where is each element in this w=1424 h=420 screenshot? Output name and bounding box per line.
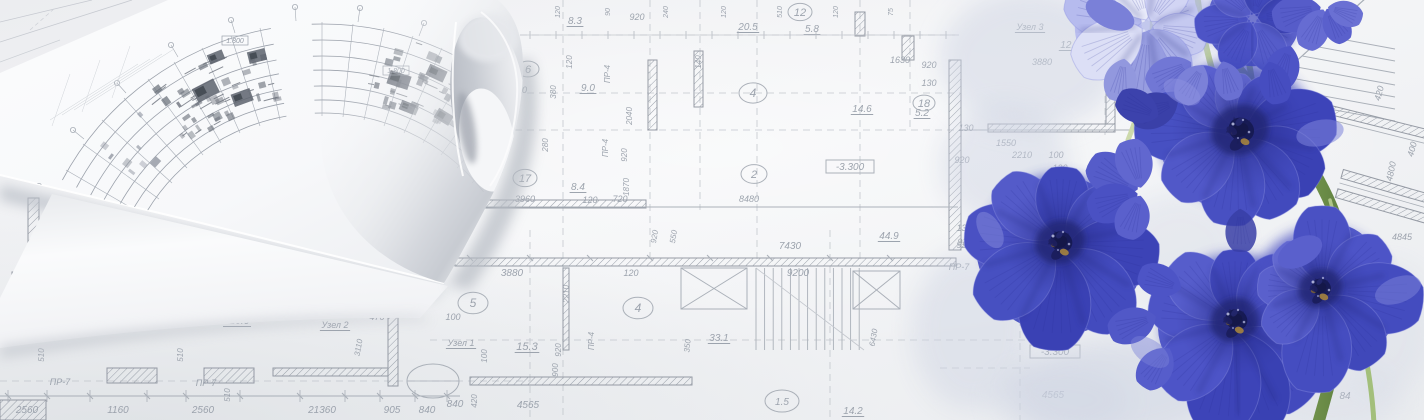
svg-text:5.8: 5.8 — [805, 24, 819, 35]
svg-text:4: 4 — [750, 86, 757, 100]
svg-text:18: 18 — [918, 98, 931, 110]
svg-text:120: 120 — [582, 195, 597, 205]
svg-text:4: 4 — [635, 301, 642, 315]
svg-text:2560: 2560 — [191, 405, 215, 416]
svg-text:920: 920 — [629, 12, 644, 22]
svg-text:2560: 2560 — [15, 405, 39, 416]
svg-text:9.0: 9.0 — [581, 83, 595, 94]
svg-text:120: 120 — [555, 6, 562, 18]
svg-text:9200: 9200 — [787, 268, 810, 279]
svg-text:420: 420 — [470, 394, 479, 408]
svg-text:840: 840 — [419, 405, 436, 416]
svg-text:905: 905 — [384, 405, 401, 416]
svg-text:44.9: 44.9 — [879, 231, 899, 242]
svg-text:280: 280 — [541, 138, 550, 153]
svg-text:510: 510 — [223, 388, 232, 402]
svg-text:14.2: 14.2 — [843, 406, 863, 417]
svg-text:1.5: 1.5 — [775, 397, 789, 408]
svg-text:140: 140 — [694, 55, 703, 69]
svg-text:350: 350 — [682, 338, 692, 353]
svg-text:1160: 1160 — [107, 405, 129, 416]
svg-text:120: 120 — [833, 6, 840, 18]
svg-text:5: 5 — [470, 296, 477, 310]
svg-text:900: 900 — [551, 363, 560, 377]
svg-text:75: 75 — [888, 8, 895, 16]
svg-text:120: 120 — [565, 55, 574, 69]
svg-text:120: 120 — [623, 268, 638, 278]
svg-text:920: 920 — [921, 60, 936, 70]
svg-text:ПР-4: ПР-4 — [587, 331, 596, 350]
svg-text:-3.300: -3.300 — [836, 162, 865, 173]
svg-text:20.5: 20.5 — [737, 22, 758, 33]
svg-text:3880: 3880 — [501, 268, 524, 279]
svg-text:7430: 7430 — [779, 241, 802, 252]
svg-text:100: 100 — [445, 312, 460, 322]
svg-text:100: 100 — [480, 349, 489, 363]
svg-text:21360: 21360 — [307, 405, 336, 416]
svg-text:4565: 4565 — [517, 400, 540, 411]
svg-text:4845: 4845 — [1392, 232, 1413, 242]
svg-text:120: 120 — [721, 6, 728, 18]
svg-text:2: 2 — [750, 169, 757, 181]
svg-text:380: 380 — [549, 85, 558, 99]
svg-text:90: 90 — [605, 8, 612, 16]
svg-text:33.1: 33.1 — [709, 333, 728, 344]
svg-text:1870: 1870 — [622, 178, 631, 196]
svg-text:8480: 8480 — [739, 194, 759, 204]
svg-text:15.3: 15.3 — [516, 341, 538, 353]
svg-text:1.800: 1.800 — [226, 38, 244, 45]
svg-text:8.3: 8.3 — [568, 16, 582, 27]
svg-text:2210: 2210 — [562, 285, 571, 304]
svg-text:840: 840 — [447, 399, 464, 410]
svg-text:1630: 1630 — [890, 55, 910, 65]
svg-text:8.4: 8.4 — [571, 182, 585, 193]
svg-text:ПР-4: ПР-4 — [601, 138, 610, 157]
svg-text:2040: 2040 — [625, 107, 634, 126]
svg-text:12: 12 — [794, 7, 806, 19]
svg-text:920: 920 — [554, 343, 563, 357]
svg-text:510: 510 — [777, 6, 784, 18]
svg-text:920: 920 — [620, 148, 629, 162]
svg-text:ПР-7: ПР-7 — [50, 377, 72, 387]
svg-text:510: 510 — [176, 348, 185, 362]
svg-text:240: 240 — [663, 6, 670, 19]
svg-text:ПР-4: ПР-4 — [603, 64, 612, 83]
svg-text:130: 130 — [921, 78, 936, 88]
svg-text:Узел 1: Узел 1 — [446, 338, 474, 348]
svg-text:ПР-7: ПР-7 — [196, 378, 218, 388]
svg-text:14.6: 14.6 — [852, 104, 872, 115]
